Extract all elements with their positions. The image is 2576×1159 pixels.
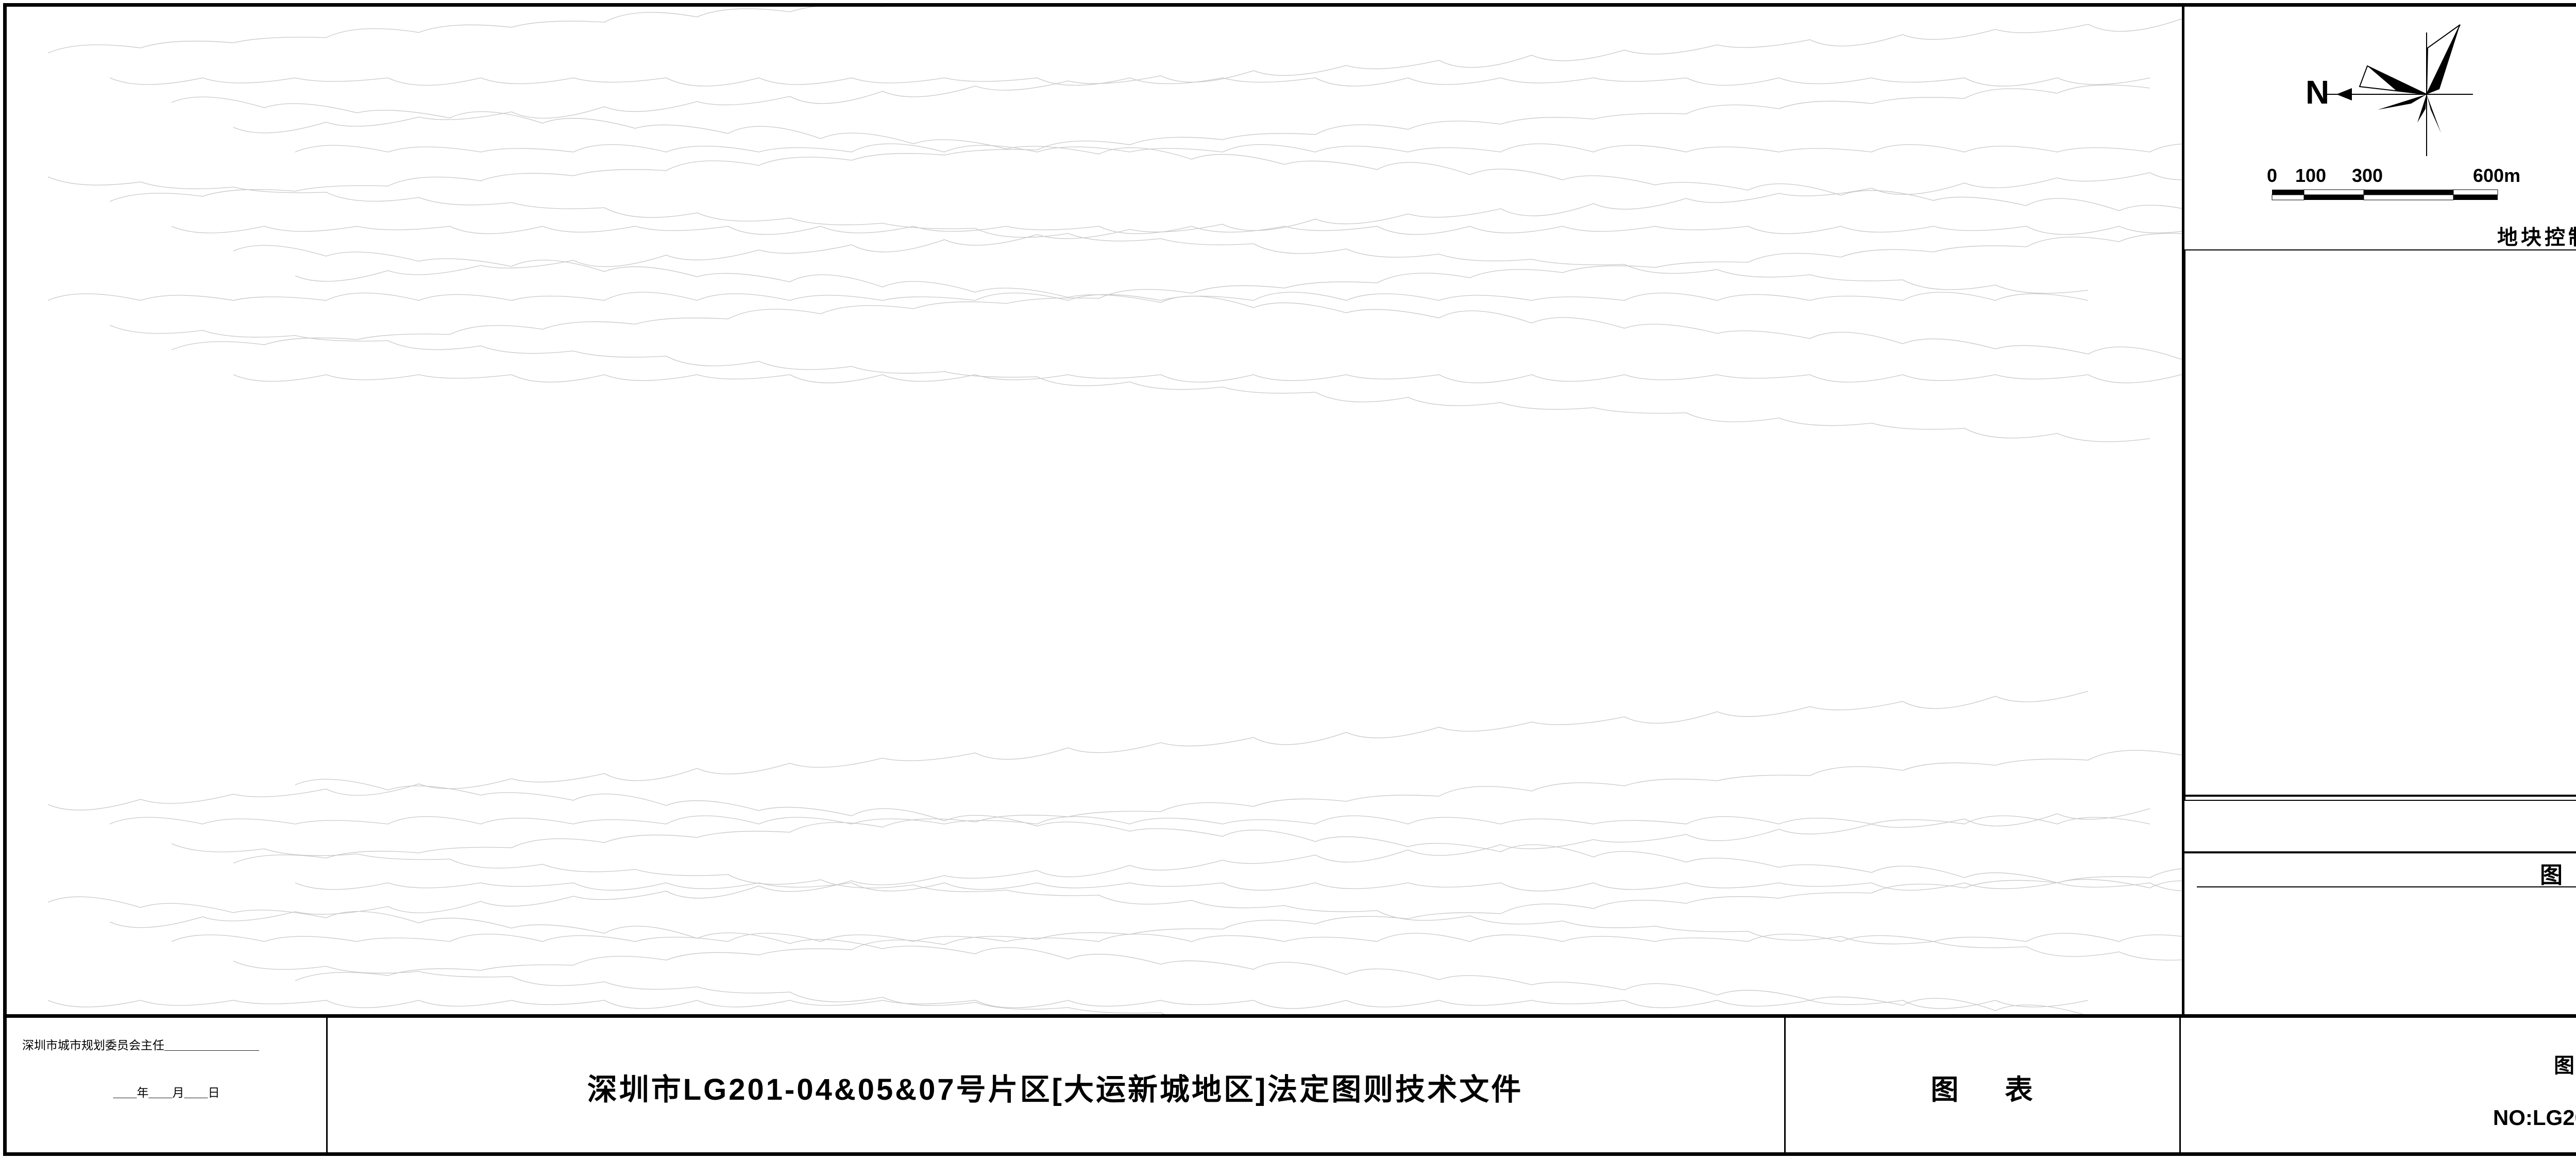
plan-map [7, 7, 2182, 1014]
code-box: 图则编号 NO:LG201-04&05&07 [2179, 1018, 2576, 1156]
indicator-table-title: 地块控制指标一览表 [2184, 221, 2576, 250]
title-box: 深圳市LG201-04&05&07号片区[大运新城地区]法定图则技术文件 [326, 1018, 1786, 1156]
scale-100: 100 [2295, 165, 2326, 186]
footer-strip: 深圳市城市规划委员会主任＿＿＿＿＿＿＿＿ ＿＿年＿＿月＿＿日 深圳市LG201-… [7, 1014, 2576, 1156]
scale-300: 300 [2352, 165, 2383, 186]
scale-bar: 0 100 300 600m [2267, 165, 2520, 200]
north-n-label: N [2306, 74, 2329, 111]
plan-sheet: N 0 100 300 600m 区域位置图 规划用地汇总表 [0, 0, 2576, 1159]
approval-signature-line: 深圳市城市规划委员会主任＿＿＿＿＿＿＿＿ [22, 1036, 311, 1055]
legend-title: 图例 [2184, 853, 2576, 889]
legend-panel: 图例 [2184, 851, 2576, 1014]
scale-600: 600m [2473, 165, 2520, 186]
scale-0: 0 [2267, 165, 2277, 186]
tubiao-box: 图表 [1784, 1018, 2181, 1156]
tubiao-label: 图表 [1885, 1067, 2079, 1107]
plan-map-svg [7, 7, 2182, 1014]
sheet-code-title: 图则编号 [2179, 1049, 2576, 1079]
north-arrow-svg: N 0 100 300 600m [2184, 7, 2576, 218]
wind-rose-icon: N [2306, 25, 2473, 156]
sheet-code-no: NO:LG201-04&05&07 [2179, 1105, 2576, 1130]
indicator-panel: 地块控制指标一览表 [2184, 221, 2576, 850]
north-scale-panel: N 0 100 300 600m [2184, 7, 2576, 218]
indicator-notes [2184, 795, 2576, 850]
approval-box: 深圳市城市规划委员会主任＿＿＿＿＿＿＿＿ ＿＿年＿＿月＿＿日 [7, 1018, 328, 1156]
sheet-main-title: 深圳市LG201-04&05&07号片区[大运新城地区]法定图则技术文件 [587, 1065, 1523, 1108]
approval-date-line: ＿＿年＿＿月＿＿日 [22, 1084, 311, 1102]
